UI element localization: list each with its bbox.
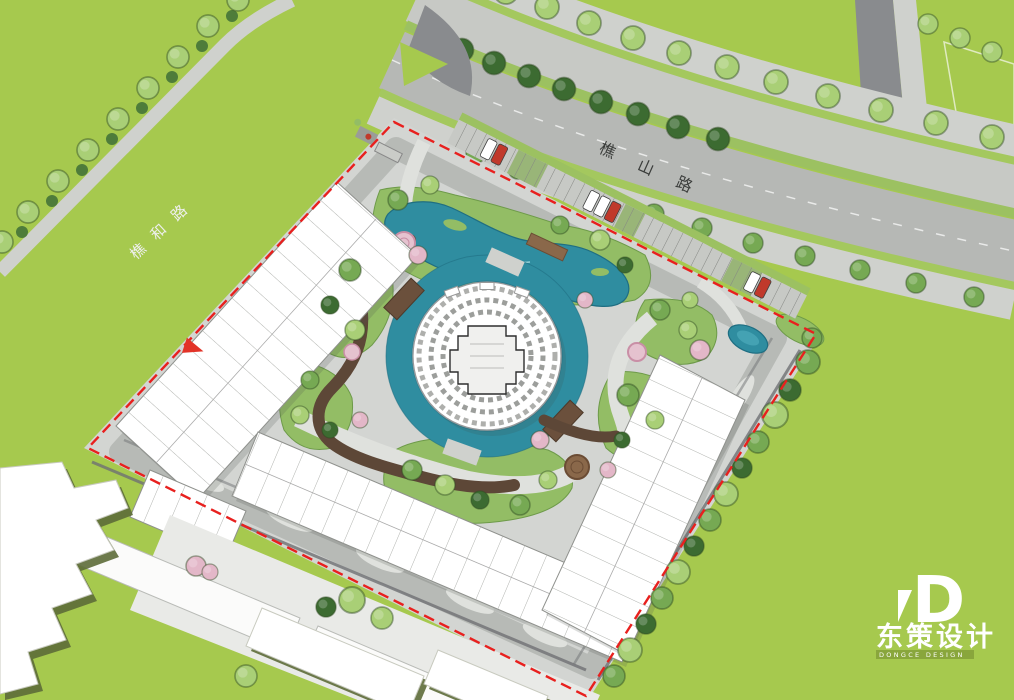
tree	[650, 300, 670, 320]
tree	[388, 190, 408, 210]
tree	[964, 287, 984, 307]
tower-core	[450, 326, 524, 394]
tree	[796, 350, 820, 374]
site-master-plan: 樵山路 樵和路 D 东策设计 DONGCE DESIGN	[0, 0, 1014, 700]
tree	[982, 42, 1002, 62]
tree	[352, 412, 368, 428]
tree	[577, 11, 601, 35]
tree	[316, 597, 336, 617]
tree	[77, 139, 99, 161]
tree	[918, 14, 938, 34]
tree	[764, 70, 788, 94]
tree	[614, 432, 630, 448]
tree	[339, 259, 361, 281]
tree	[590, 91, 613, 114]
tree	[321, 296, 339, 314]
tree	[690, 340, 710, 360]
tree	[553, 78, 576, 101]
tree	[539, 471, 557, 489]
tree	[924, 111, 948, 135]
tree	[816, 84, 840, 108]
tree	[627, 103, 650, 126]
tree	[715, 55, 739, 79]
tree	[322, 422, 338, 438]
tree	[197, 15, 219, 37]
tree	[510, 495, 530, 515]
tree	[714, 482, 738, 506]
tree	[666, 560, 690, 584]
tree	[518, 65, 541, 88]
tree	[531, 431, 549, 449]
tree	[950, 28, 970, 48]
tree	[409, 246, 427, 264]
tree	[202, 564, 218, 580]
tree	[667, 116, 690, 139]
tree	[291, 406, 309, 424]
tree	[107, 108, 129, 130]
logo-name-en: DONGCE DESIGN	[879, 651, 965, 659]
tree	[707, 128, 730, 151]
tree	[779, 379, 801, 401]
tree	[980, 125, 1004, 149]
tree	[590, 230, 610, 250]
tree	[345, 320, 365, 340]
tree	[402, 460, 422, 480]
tree	[621, 26, 645, 50]
tree	[617, 257, 633, 273]
tree	[743, 233, 763, 253]
tree	[535, 0, 559, 19]
tree	[435, 475, 455, 495]
tree	[421, 176, 439, 194]
tree	[679, 321, 697, 339]
tree	[137, 77, 159, 99]
tree	[301, 371, 319, 389]
brown-plaza	[565, 455, 589, 479]
tree	[636, 614, 656, 634]
tree	[371, 607, 393, 629]
tree	[869, 98, 893, 122]
tree	[551, 216, 569, 234]
tree	[747, 431, 769, 453]
tree	[850, 260, 870, 280]
tree	[167, 46, 189, 68]
tree	[600, 462, 616, 478]
tree	[235, 665, 257, 687]
tree	[577, 292, 593, 308]
tree	[667, 41, 691, 65]
tree	[603, 665, 625, 687]
tree	[47, 170, 69, 192]
tree	[617, 384, 639, 406]
tree	[795, 246, 815, 266]
tree	[906, 273, 926, 293]
tree	[483, 52, 506, 75]
tree	[471, 491, 489, 509]
tree	[17, 201, 39, 223]
tree	[646, 411, 664, 429]
logo-name-cn: 东策设计	[876, 621, 996, 653]
tree	[339, 587, 365, 613]
tree	[682, 292, 698, 308]
